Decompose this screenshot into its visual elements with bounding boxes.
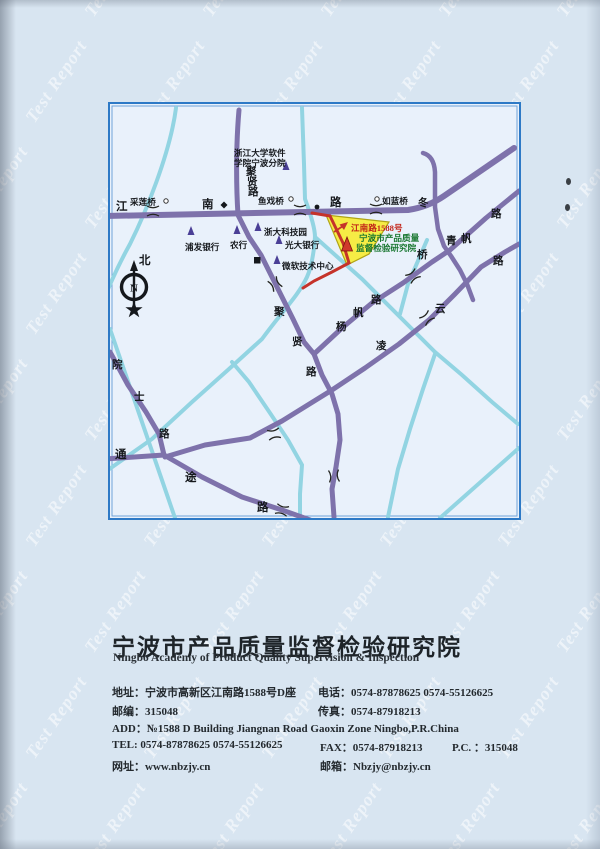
label-cailian-bridge: 采莲桥 [129, 196, 156, 207]
contact-website: 网址：www.nbzjy.cn [112, 758, 210, 774]
watermark-text: Test Report [21, 36, 91, 126]
label-dong: 冬 [418, 196, 429, 209]
contact-add-en: ADD：№1588 D Building Jiangnan Road Gaoxi… [112, 720, 459, 736]
label-agri-bank: 农行 [229, 239, 248, 250]
square-marker [254, 257, 261, 264]
bridge-dot-yuxi [289, 197, 293, 201]
scan-speck [565, 204, 570, 211]
map-canvas: N 浙江大学软件 学院宁波分院 聚 贤 路 采莲桥 江 南 路 鱼戏桥 如蓝桥 … [110, 104, 519, 518]
canal-corner [440, 448, 519, 518]
scanned-report-page: Test ReportTest ReportTest ReportTest Re… [0, 0, 600, 849]
compass-icon: N [122, 260, 147, 317]
watermark-text: Test Report [80, 778, 150, 849]
label-lingyun-1: 凌 [376, 339, 387, 352]
diamond-marker [221, 202, 228, 209]
watermark-text: Test Report [552, 142, 600, 232]
scan-speck [566, 178, 571, 185]
contact-postcode: 邮编：315048 [112, 703, 178, 719]
label-yuanshi-2: 士 [134, 390, 145, 403]
watermark-text: Test Report [198, 778, 268, 849]
marker-agri-bank [234, 225, 241, 234]
label-tongtu-2: 途 [185, 470, 197, 484]
canal-bottomleft [110, 329, 175, 518]
label-university-line2: 学院宁波分院 [234, 157, 286, 168]
bridge-cailian [147, 206, 159, 216]
label-yuanshi-3: 路 [159, 427, 170, 440]
bridge-dot-cailian [164, 199, 168, 203]
road-lingyun [165, 244, 519, 457]
watermark-text: Test Report [21, 248, 91, 338]
contact-phone: 电话：0574-87878625 0574-55126625 [318, 684, 493, 700]
label-qiao: 桥 [417, 248, 428, 261]
watermark-text: Test Report [434, 0, 504, 21]
contact-fax-en: FAX：0574-87918213 [320, 739, 422, 755]
compass-n-letter: N [130, 283, 138, 295]
watermark-text: Test Report [198, 0, 268, 21]
canal-right-branch [388, 354, 435, 517]
label-fan: 帆 [461, 232, 472, 245]
label-lingyun-3: 路 [493, 254, 504, 267]
bridge-dot-rulan [375, 197, 379, 201]
watermark-text: Test Report [21, 460, 91, 550]
contact-email: 邮箱：Nbzjy@nbzjy.cn [320, 758, 431, 774]
label-science-park: 浙大科技园 [264, 226, 307, 237]
watermark-text: Test Report [316, 778, 386, 849]
label-destination-org1: 宁波市产品质量 [359, 232, 420, 243]
label-destination-org2: 监督检验研究院 [356, 242, 417, 253]
watermark-text: Test Report [552, 0, 600, 21]
road-jiangnan [110, 148, 514, 216]
label-juxian-bottom-1: 聚 [273, 306, 285, 318]
label-qing: 青 [446, 234, 457, 247]
label-jiangnan-3: 路 [330, 195, 342, 209]
contact-pc-en: P.C. ：315048 [452, 739, 518, 755]
label-yangfan-3: 路 [371, 293, 382, 306]
watermark-text: Test Report [21, 672, 91, 762]
label-yuanshi-1: 院 [112, 358, 123, 371]
watermark-text: Test Report [552, 778, 600, 849]
label-jiangnan-1: 江 [116, 199, 128, 213]
label-jiangnan-2: 南 [202, 197, 214, 211]
contact-fax: 传真：0574-87918213 [318, 703, 421, 719]
label-rulan-bridge: 如蓝桥 [382, 195, 408, 206]
label-university-line1: 浙江大学软件 [234, 147, 286, 158]
dot-marker [315, 205, 320, 210]
label-north: 北 [139, 253, 151, 267]
watermark-text: Test Report [316, 0, 386, 21]
contact-tel-en: TEL: 0574-87878625 0574-55126625 [112, 739, 283, 751]
watermark-text: Test Report [0, 778, 33, 849]
watermark-text: Test Report [0, 142, 33, 232]
road-dong [423, 153, 473, 300]
road-network [110, 110, 519, 518]
watermark-text: Test Report [0, 354, 33, 444]
label-yangfan-2: 帆 [353, 306, 364, 319]
label-lingyun-2: 云 [435, 303, 446, 315]
label-dong-lu: 路 [491, 207, 502, 220]
location-map: N 浙江大学软件 学院宁波分院 聚 贤 路 采莲桥 江 南 路 鱼戏桥 如蓝桥 … [108, 102, 521, 520]
label-destination-address: 江南路1588号 [351, 222, 403, 233]
contact-address: 地址：宁波市高新区江南路1588号D座 [112, 684, 296, 700]
marker-science-park [255, 222, 262, 231]
watermark-text: Test Report [0, 0, 33, 21]
road-tongtu [110, 455, 310, 518]
label-tongtu-1: 通 [115, 448, 127, 461]
watermark-text: Test Report [434, 778, 504, 849]
watermark-text: Test Report [0, 566, 33, 656]
label-juxian-bottom-2: 贤 [292, 335, 303, 348]
org-title-en: Ningbo Academy of Product Quality Superv… [113, 652, 419, 664]
label-juxian-bottom-3: 路 [306, 365, 317, 378]
label-tongtu-3: 路 [257, 500, 269, 514]
label-microsoft-center: 微软技术中心 [281, 260, 334, 271]
watermark-text: Test Report [552, 354, 600, 444]
label-pudong-bank: 浦发银行 [185, 241, 220, 252]
marker-microsoft [274, 255, 281, 264]
marker-pudong-bank [188, 226, 195, 235]
watermark-text: Test Report [552, 566, 600, 656]
label-yangfan-1: 杨 [336, 320, 347, 333]
label-yuxi-bridge: 鱼戏桥 [258, 195, 284, 206]
watermark-text: Test Report [80, 0, 150, 21]
label-everbright-bank: 光大银行 [284, 239, 320, 250]
